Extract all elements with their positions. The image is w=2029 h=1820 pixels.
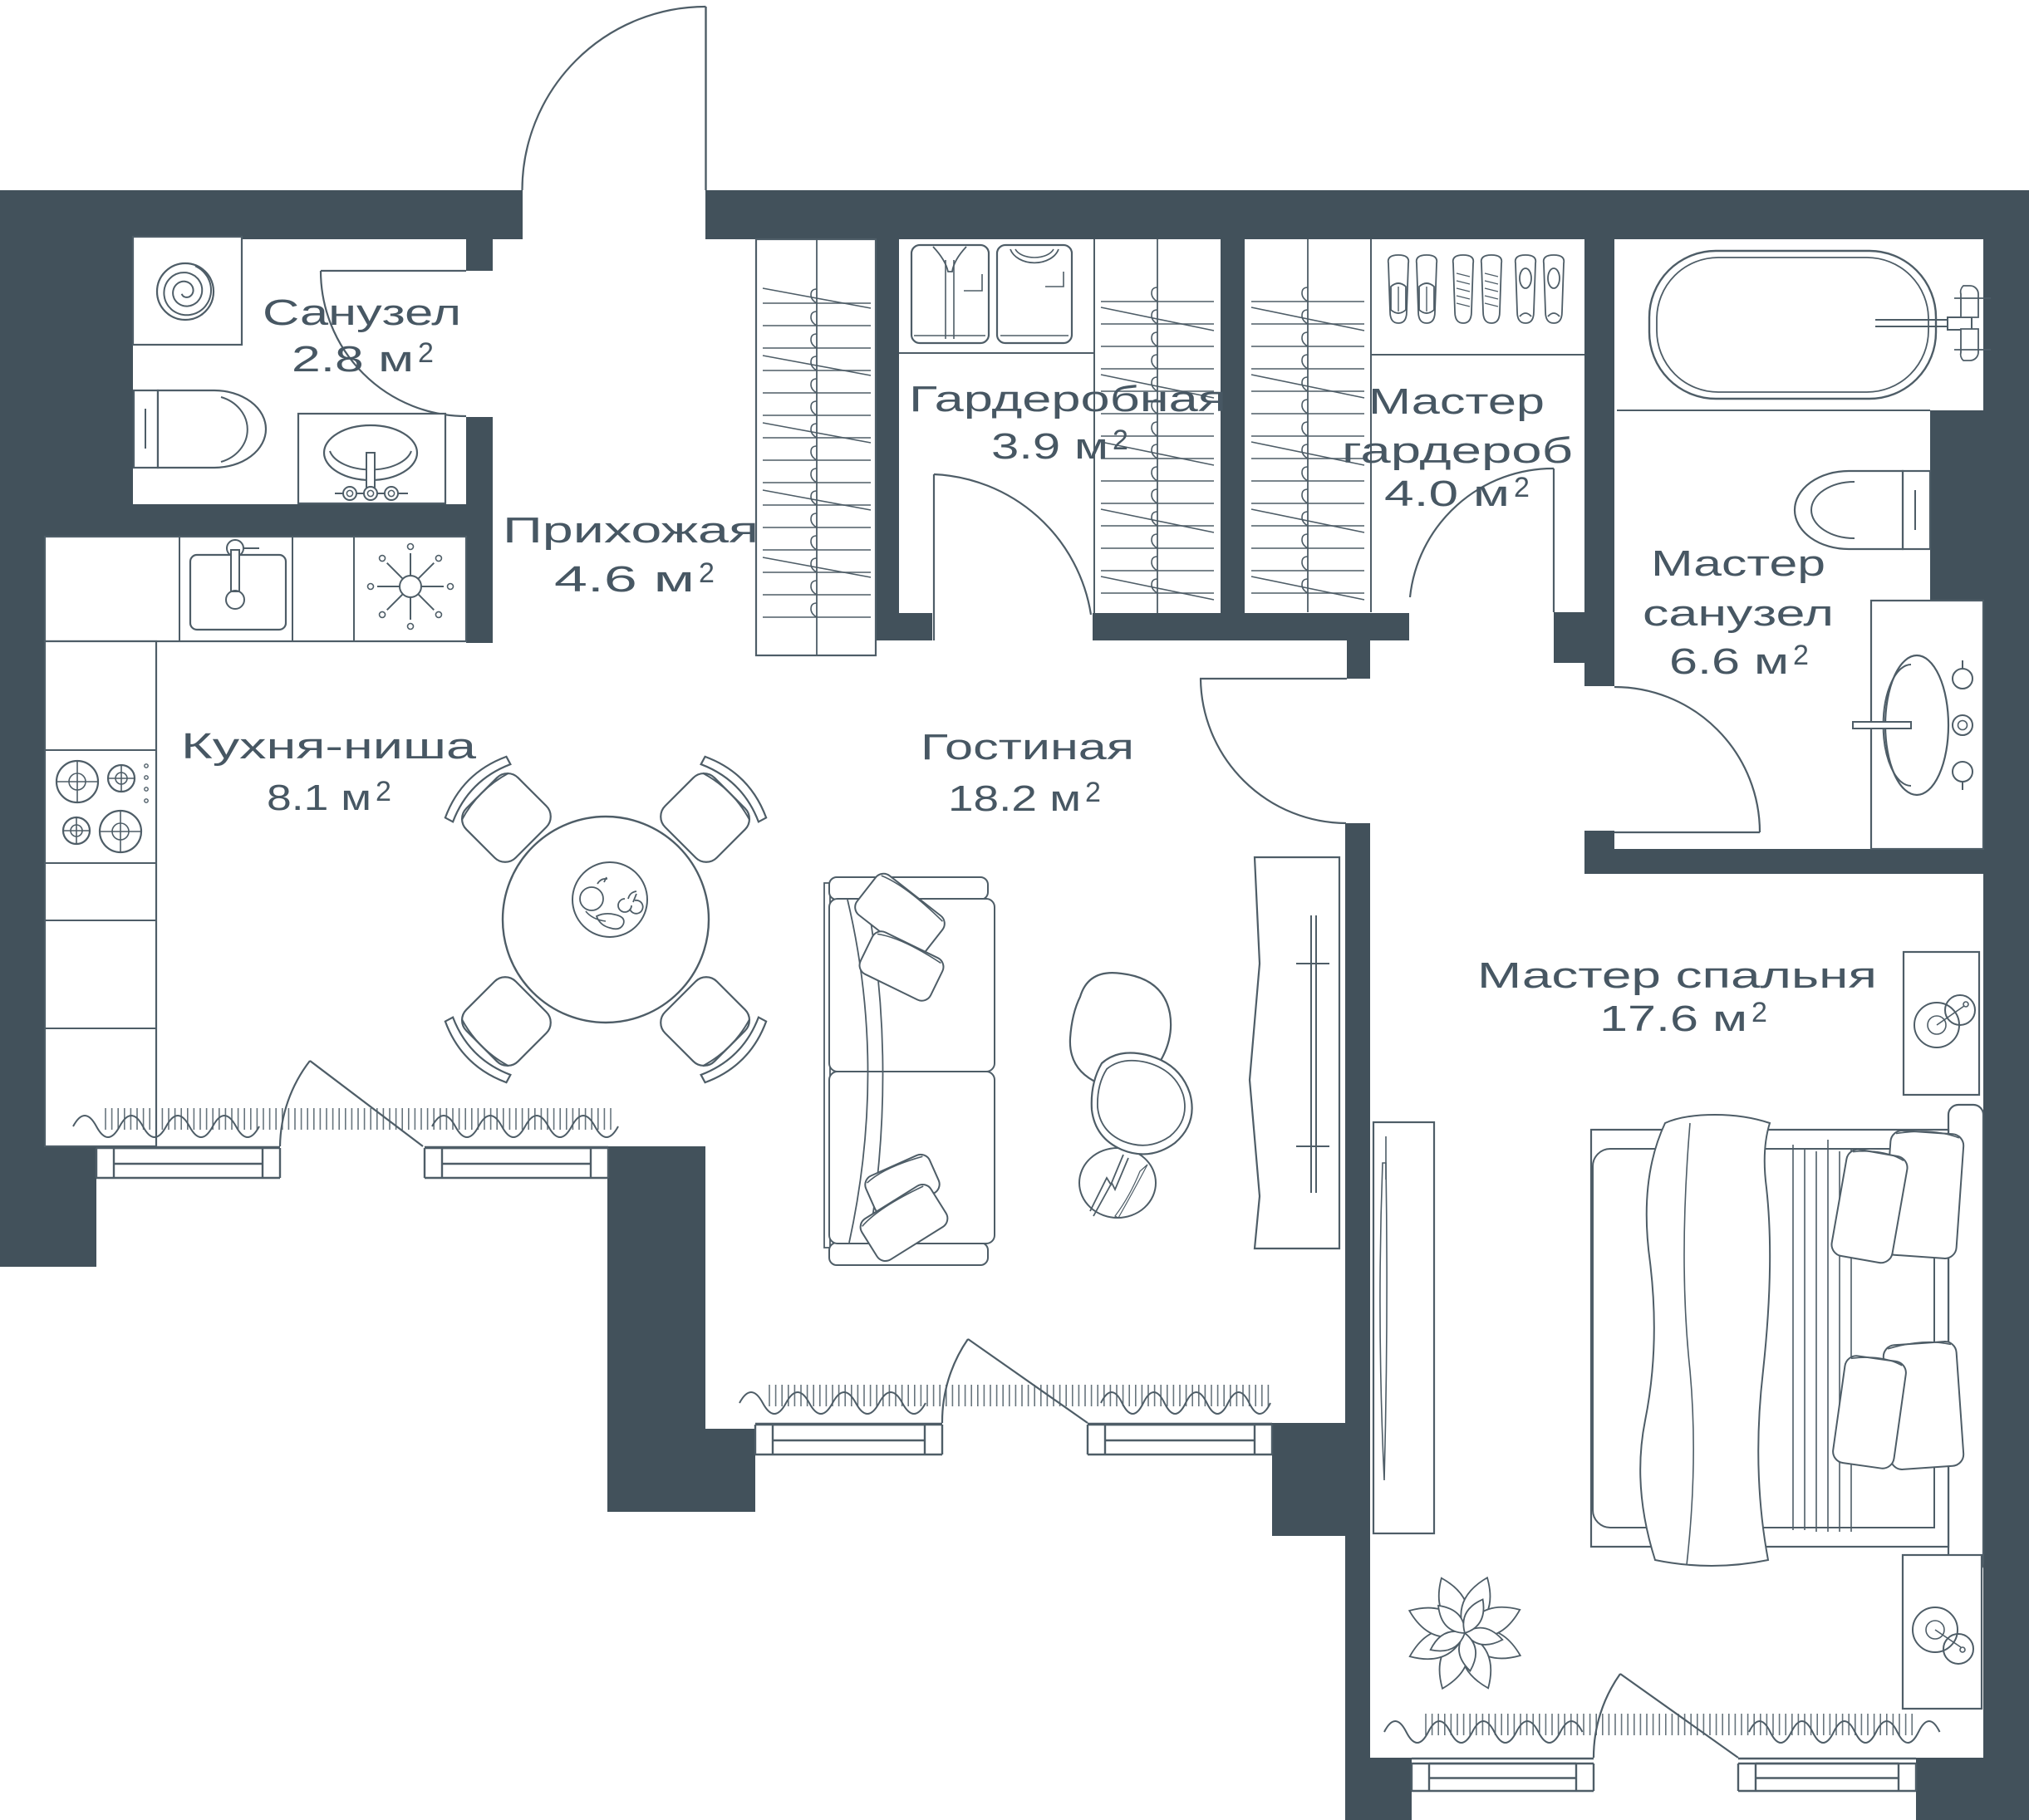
svg-text:2: 2 [376, 776, 391, 807]
svg-text:санузел: санузел [1643, 593, 1834, 634]
svg-text:Гостиная: Гостиная [921, 727, 1134, 768]
svg-text:2: 2 [1793, 640, 1809, 671]
svg-text:2: 2 [418, 337, 434, 369]
svg-text:2: 2 [1113, 424, 1128, 456]
svg-text:2: 2 [1514, 472, 1530, 503]
svg-text:Прихожая: Прихожая [503, 510, 759, 551]
svg-text:3.9 м: 3.9 м [991, 426, 1108, 467]
svg-text:Кухня-ниша: Кухня-ниша [181, 726, 477, 767]
svg-text:2: 2 [1085, 777, 1101, 808]
svg-text:2: 2 [699, 557, 715, 589]
svg-text:Санузел: Санузел [263, 292, 461, 333]
svg-text:8.1 м: 8.1 м [267, 778, 371, 818]
svg-text:Мастер: Мастер [1368, 381, 1545, 422]
svg-text:2.8 м: 2.8 м [292, 339, 414, 380]
svg-text:17.6 м: 17.6 м [1599, 998, 1747, 1039]
svg-text:Мастер: Мастер [1651, 543, 1825, 584]
svg-text:18.2 м: 18.2 м [948, 778, 1081, 819]
svg-text:Гардеробная: Гардеробная [909, 379, 1226, 419]
svg-text:6.6 м: 6.6 м [1669, 641, 1789, 682]
svg-text:4.0 м: 4.0 м [1384, 473, 1510, 514]
svg-text:4.6 м: 4.6 м [554, 559, 695, 600]
svg-text:Мастер спальня: Мастер спальня [1477, 955, 1877, 996]
svg-text:2: 2 [1751, 997, 1767, 1028]
svg-text:гардероб: гардероб [1342, 430, 1573, 471]
